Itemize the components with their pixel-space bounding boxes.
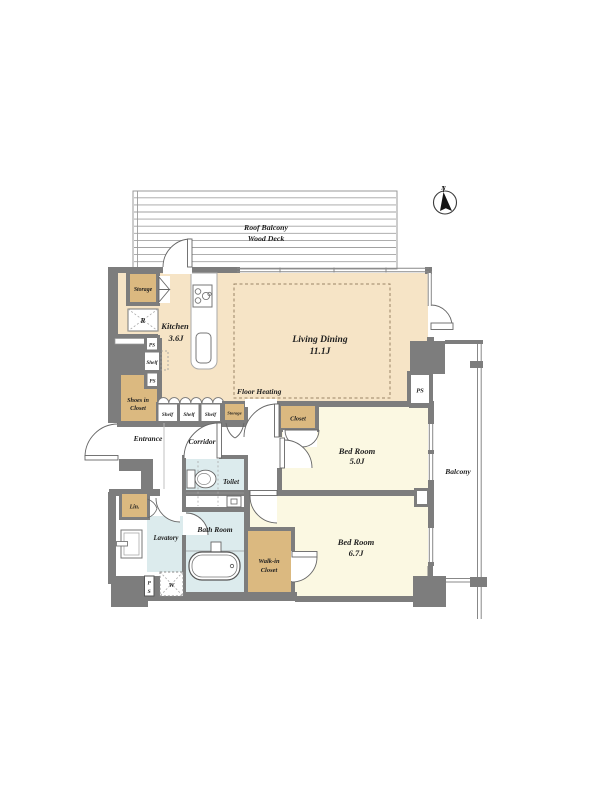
svg-text:PS: PS xyxy=(416,388,424,395)
svg-text:Bed Room: Bed Room xyxy=(337,537,375,547)
svg-text:Closet: Closet xyxy=(130,405,146,412)
svg-text:Closet: Closet xyxy=(261,567,278,574)
svg-text:Lin.: Lin. xyxy=(129,505,140,511)
svg-text:Bath Room: Bath Room xyxy=(196,525,232,534)
svg-text:Storage: Storage xyxy=(134,287,153,293)
svg-text:Kitchen: Kitchen xyxy=(160,321,189,331)
svg-text:Lavatory: Lavatory xyxy=(153,535,180,542)
svg-text:Roof Balcony: Roof Balcony xyxy=(243,223,289,232)
svg-text:Toilet: Toilet xyxy=(223,478,240,486)
svg-text:PS: PS xyxy=(149,343,155,349)
svg-text:Shelf: Shelf xyxy=(183,412,196,418)
svg-text:PS: PS xyxy=(149,379,155,385)
svg-text:N: N xyxy=(440,185,446,192)
svg-text:3.6J: 3.6J xyxy=(168,333,185,343)
svg-text:Floor Heating: Floor Heating xyxy=(237,387,282,396)
svg-text:5.0J: 5.0J xyxy=(350,456,366,466)
svg-text:S: S xyxy=(148,589,151,595)
svg-text:R: R xyxy=(140,317,146,325)
svg-text:Closet: Closet xyxy=(290,416,306,423)
svg-text:Storage: Storage xyxy=(227,411,242,416)
svg-text:Entrance: Entrance xyxy=(133,434,163,443)
svg-text:Shoes in: Shoes in xyxy=(127,397,149,404)
svg-text:Living Dining: Living Dining xyxy=(291,335,347,345)
svg-text:Shelf: Shelf xyxy=(146,360,159,366)
svg-text:Shelf: Shelf xyxy=(205,412,218,418)
svg-text:Balcony: Balcony xyxy=(444,467,471,476)
svg-text:Corridor: Corridor xyxy=(188,437,215,446)
svg-text:6.7J: 6.7J xyxy=(349,548,365,558)
svg-text:Walk-in: Walk-in xyxy=(258,558,280,565)
svg-text:Shelf: Shelf xyxy=(162,412,175,418)
svg-text:Wood Deck: Wood Deck xyxy=(248,234,285,243)
svg-text:11.1J: 11.1J xyxy=(310,347,331,357)
svg-text:Bed Room: Bed Room xyxy=(338,446,376,456)
